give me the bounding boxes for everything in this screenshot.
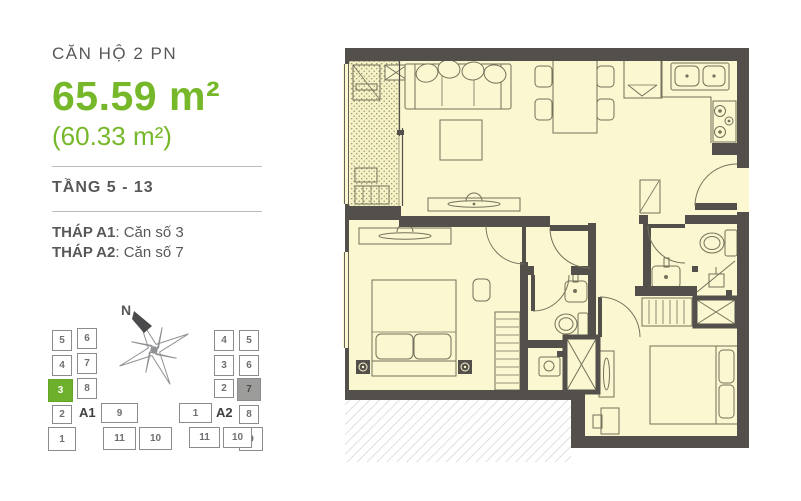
- keyplan-a1-unit-3: 3: [48, 379, 73, 402]
- keyplan-a2-unit-7: 7: [237, 378, 261, 401]
- keyplan-a1-unit-6: 6: [77, 328, 97, 349]
- balcony-floor: [349, 61, 399, 207]
- keyplan-tower-a2: A2 4321567891110: [176, 328, 272, 454]
- keyplan-a2-unit-8: 8: [239, 405, 259, 424]
- tower-a2-line: THÁP A2: Căn số 7: [52, 244, 264, 261]
- sofa-icon: [405, 58, 511, 109]
- keyplan-a2-label: A2: [216, 405, 233, 420]
- area-sub: (60.33 m²): [52, 121, 264, 152]
- keyplan-a1-unit-11: 11: [103, 427, 136, 450]
- void-hatch: [345, 400, 571, 462]
- keyplan-a1-unit-1: 1: [48, 427, 76, 451]
- keyplan-a1-unit-7: 7: [77, 353, 97, 374]
- technical-shaft: [565, 337, 598, 392]
- tower-a2-value: : Căn số 7: [115, 244, 183, 261]
- info-panel: CĂN HỘ 2 PN 65.59 m² (60.33 m²) TẦNG 5 -…: [52, 44, 264, 261]
- technical-shaft: [695, 298, 737, 326]
- unit-type: CĂN HỘ 2 PN: [52, 44, 264, 64]
- keyplan-a2-unit-11: 11: [189, 427, 220, 448]
- divider: [52, 211, 262, 212]
- area-main: 65.59 m²: [52, 76, 264, 117]
- floor-plan: [343, 40, 753, 464]
- keyplan-a2-unit-10: 10: [223, 427, 252, 448]
- keyplan-a1-label: A1: [79, 405, 96, 420]
- keyplan-a1-unit-4: 4: [52, 355, 72, 376]
- keyplan-a1-unit-10: 10: [139, 427, 172, 450]
- keyplan-a1-unit-5: 5: [52, 330, 72, 351]
- ac-ledge-icon: [385, 65, 407, 80]
- keyplan-a2-unit-3: 3: [214, 355, 234, 376]
- floorplan-brochure: { "colors": { "accent_green": "#76b82a",…: [0, 0, 801, 501]
- keyplan-a2-unit-2: 2: [214, 379, 234, 398]
- keyplan-tower-a1: A1 5432167891110: [48, 328, 174, 454]
- tower-a2-label: THÁP A2: [52, 244, 115, 261]
- keyplan-a2-unit-5: 5: [239, 330, 259, 351]
- tower-a1-label: THÁP A1: [52, 224, 115, 241]
- tower-a1-line: THÁP A1: Căn số 3: [52, 224, 264, 241]
- divider: [52, 166, 262, 167]
- keyplan-a1-unit-8: 8: [77, 378, 97, 399]
- keyplan-a1-unit-9: 9: [101, 403, 138, 423]
- keyplan-a2-unit-4: 4: [214, 330, 234, 351]
- dining-table-icon: [553, 60, 597, 133]
- keyplan-a2-unit-1: 1: [179, 403, 212, 423]
- compass-north-label: N: [121, 302, 131, 318]
- keyplan-a2-unit-6: 6: [239, 355, 259, 376]
- floor-range: TẦNG 5 - 13: [52, 179, 264, 197]
- keyplan-a1-unit-2: 2: [52, 405, 72, 424]
- bedside-table-icon: [458, 360, 472, 374]
- bedside-table-icon: [356, 360, 370, 374]
- tower-a1-value: : Căn số 3: [115, 224, 183, 241]
